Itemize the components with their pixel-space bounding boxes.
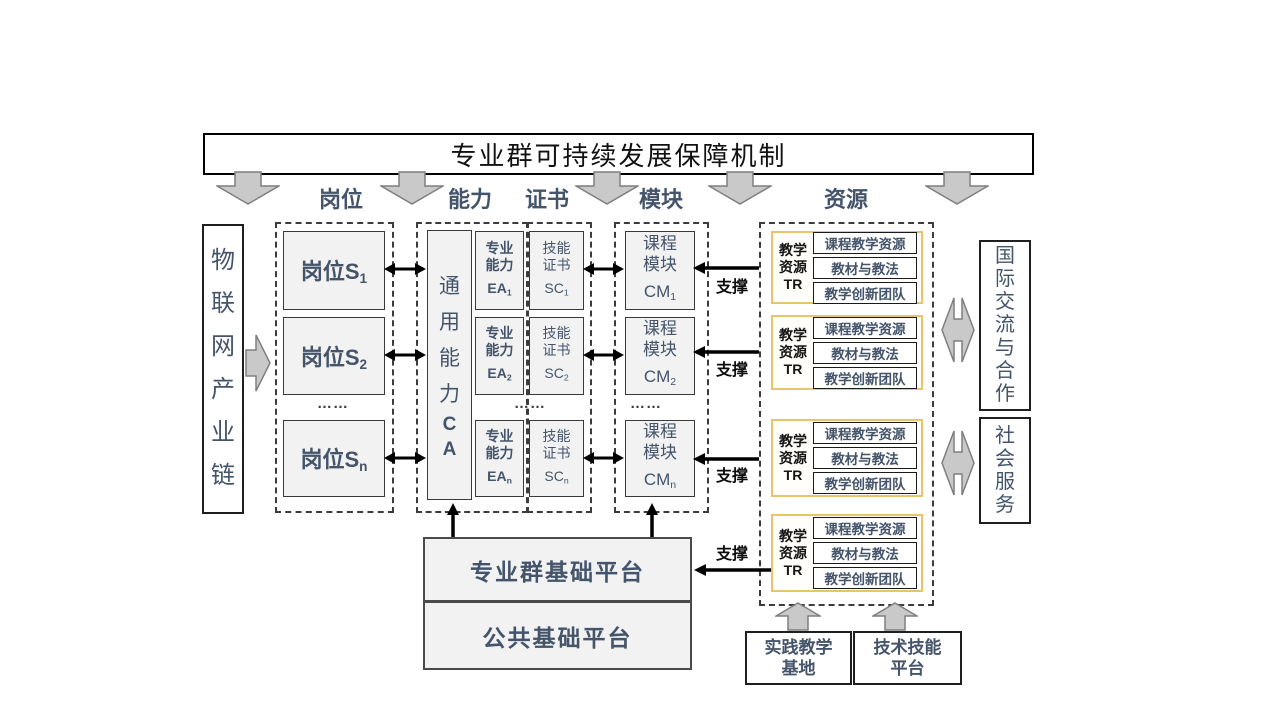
technical-skill-platform-box: 技术技能 平台	[853, 631, 962, 685]
diagram-canvas: 专业群可持续发展保障机制 岗位 能力 证书 模块 资源 物联网产业链 岗位S1 …	[0, 0, 1280, 720]
industry-chain-box: 物联网产业链	[202, 224, 244, 514]
ellipsis-module: ……	[621, 395, 671, 412]
tr-label: 教学 资源 TR	[775, 327, 811, 378]
tr-label: 教学 资源 TR	[775, 242, 811, 293]
cm-line1: 课程	[643, 421, 677, 442]
down-arrow-icon	[708, 171, 772, 205]
bidirectional-arrow-icon	[384, 262, 426, 276]
column-header-positions: 岗位	[311, 182, 371, 214]
course-module-box-n: 课程 模块 CMn	[625, 420, 695, 497]
general-ability-cn: 通用能力	[438, 268, 462, 412]
cm-line2: 模块	[643, 442, 677, 463]
cm-line1: 课程	[643, 318, 677, 339]
column-header-ability: 能力	[440, 182, 500, 214]
up-arrow-icon	[446, 503, 460, 537]
resource-item: 教材与教法	[813, 257, 917, 279]
bidirectional-arrow-icon	[384, 348, 426, 362]
banner-title-text: 专业群可持续发展保障机制	[450, 136, 786, 173]
international-exchange-label: 国际交流与合作	[994, 245, 1016, 406]
teaching-resources-group-4: 教学 资源 TR 课程教学资源 教材与教法 教学创新团队	[771, 514, 923, 592]
resource-item: 教学创新团队	[813, 472, 917, 494]
practice-base-line2: 基地	[782, 658, 816, 679]
sc-line1: 技能	[543, 428, 571, 445]
column-header-resource: 资源	[816, 182, 876, 214]
sc-code: SCn	[544, 468, 568, 490]
tr-label-line2: 资源	[775, 259, 811, 276]
position-label: 岗位Sn	[300, 442, 367, 474]
skill-certificate-box-n: 技能 证书 SCn	[529, 420, 584, 497]
position-label: 岗位S2	[301, 340, 367, 372]
tech-platform-line1: 技术技能	[874, 637, 942, 658]
bidirectional-arrow-icon	[583, 348, 624, 362]
tr-label: 教学 资源 TR	[775, 433, 811, 484]
down-arrow-icon	[925, 171, 989, 205]
sc-line1: 技能	[543, 240, 571, 257]
tr-label: 教学 资源 TR	[775, 528, 811, 579]
tr-items: 课程教学资源 教材与教法 教学创新团队	[813, 517, 917, 589]
resource-item: 教材与教法	[813, 342, 917, 364]
social-service-label: 社会服务	[994, 425, 1016, 517]
ea-line1: 专业	[486, 428, 514, 445]
teaching-resources-group-2: 教学 资源 TR 课程教学资源 教材与教法 教学创新团队	[771, 315, 923, 390]
tr-label-line2: 资源	[775, 545, 811, 562]
banner-title: 专业群可持续发展保障机制	[203, 133, 1034, 175]
cm-line2: 模块	[643, 339, 677, 360]
practice-base-line1: 实践教学	[765, 637, 833, 658]
resource-item: 教学创新团队	[813, 367, 917, 389]
support-label: 支撑	[710, 540, 754, 564]
general-ability-box: 通用能力 CA	[427, 230, 472, 500]
tr-label-line1: 教学	[775, 433, 811, 450]
sc-code: SC1	[544, 280, 568, 302]
industry-chain-label: 物联网产业链	[210, 240, 236, 498]
ea-code: EAn	[487, 468, 512, 490]
cm-code: CMn	[644, 469, 676, 496]
resource-item: 教材与教法	[813, 542, 917, 564]
tr-label-line1: 教学	[775, 242, 811, 259]
position-box-1: 岗位S1	[283, 231, 385, 310]
group-foundation-platform: 专业群基础平台	[423, 537, 692, 602]
course-module-box-2: 课程 模块 CM2	[625, 317, 695, 395]
course-module-box-1: 课程 模块 CM1	[625, 231, 695, 310]
cm-code: CM2	[644, 366, 676, 393]
tr-label-line1: 教学	[775, 327, 811, 344]
cm-line2: 模块	[643, 254, 677, 275]
ea-line2: 能力	[486, 445, 514, 462]
left-right-arrow-icon	[941, 292, 975, 368]
teaching-resources-group-3: 教学 资源 TR 课程教学资源 教材与教法 教学创新团队	[771, 419, 923, 497]
sc-line2: 证书	[543, 257, 571, 274]
group-foundation-platform-label: 专业群基础平台	[470, 553, 645, 587]
support-label: 支撑	[710, 462, 754, 486]
column-header-certificate: 证书	[517, 182, 577, 214]
ea-line2: 能力	[486, 342, 514, 359]
position-box-2: 岗位S2	[283, 317, 385, 395]
bidirectional-arrow-icon	[583, 451, 624, 465]
resource-item: 课程教学资源	[813, 232, 917, 254]
ea-code: EA2	[487, 365, 511, 387]
skill-certificate-box-2: 技能 证书 SC2	[529, 317, 584, 395]
professional-ability-box-1: 专业 能力 EA1	[475, 231, 524, 310]
social-service-box: 社会服务	[979, 417, 1031, 524]
position-label: 岗位S1	[301, 254, 367, 286]
tr-label-line3: TR	[775, 562, 811, 579]
common-foundation-platform-label: 公共基础平台	[483, 619, 633, 653]
ellipsis-ability: ……	[505, 395, 555, 412]
resource-item: 课程教学资源	[813, 517, 917, 539]
ea-code: EA1	[487, 280, 511, 302]
skill-certificate-box-1: 技能 证书 SC1	[529, 231, 584, 310]
ea-line1: 专业	[486, 325, 514, 342]
position-box-n: 岗位Sn	[283, 420, 385, 497]
support-arrow-icon	[694, 563, 772, 577]
resource-item: 课程教学资源	[813, 422, 917, 444]
bidirectional-arrow-icon	[583, 262, 624, 276]
right-arrow-icon	[245, 333, 271, 393]
up-arrow-icon	[775, 602, 821, 631]
down-arrow-icon	[216, 171, 280, 205]
cm-line1: 课程	[643, 233, 677, 254]
cm-code: CM1	[644, 281, 676, 308]
sc-line2: 证书	[543, 342, 571, 359]
resource-item: 教学创新团队	[813, 567, 917, 589]
tr-items: 课程教学资源 教材与教法 教学创新团队	[813, 232, 917, 304]
tr-label-line3: TR	[775, 467, 811, 484]
up-arrow-icon	[645, 503, 659, 537]
teaching-resources-group-1: 教学 资源 TR 课程教学资源 教材与教法 教学创新团队	[771, 231, 923, 304]
sc-line2: 证书	[543, 445, 571, 462]
down-arrow-icon	[575, 171, 639, 205]
down-arrow-icon	[380, 171, 444, 205]
sc-code: SC2	[544, 365, 568, 387]
tr-label-line3: TR	[775, 361, 811, 378]
column-header-module: 模块	[631, 182, 691, 214]
practice-teaching-base-box: 实践教学 基地	[745, 631, 852, 685]
left-right-arrow-icon	[941, 425, 975, 501]
common-foundation-platform: 公共基础平台	[423, 601, 692, 670]
ea-line2: 能力	[486, 257, 514, 274]
up-arrow-icon	[872, 602, 918, 631]
tr-items: 课程教学资源 教材与教法 教学创新团队	[813, 317, 917, 389]
tr-items: 课程教学资源 教材与教法 教学创新团队	[813, 422, 917, 494]
support-label: 支撑	[710, 356, 754, 380]
resource-item: 课程教学资源	[813, 317, 917, 339]
tr-label-line1: 教学	[775, 528, 811, 545]
general-ability-en: CA	[439, 412, 461, 462]
support-label: 支撑	[710, 273, 754, 297]
tr-label-line3: TR	[775, 276, 811, 293]
tr-label-line2: 资源	[775, 450, 811, 467]
sc-line1: 技能	[543, 325, 571, 342]
bidirectional-arrow-icon	[384, 451, 426, 465]
resource-item: 教学创新团队	[813, 282, 917, 304]
professional-ability-box-2: 专业 能力 EA2	[475, 317, 524, 395]
professional-ability-box-n: 专业 能力 EAn	[475, 420, 524, 497]
tr-label-line2: 资源	[775, 344, 811, 361]
ellipsis-positions: ……	[308, 395, 358, 412]
resource-item: 教材与教法	[813, 447, 917, 469]
tech-platform-line2: 平台	[891, 658, 925, 679]
ea-line1: 专业	[486, 240, 514, 257]
international-exchange-box: 国际交流与合作	[979, 240, 1031, 411]
